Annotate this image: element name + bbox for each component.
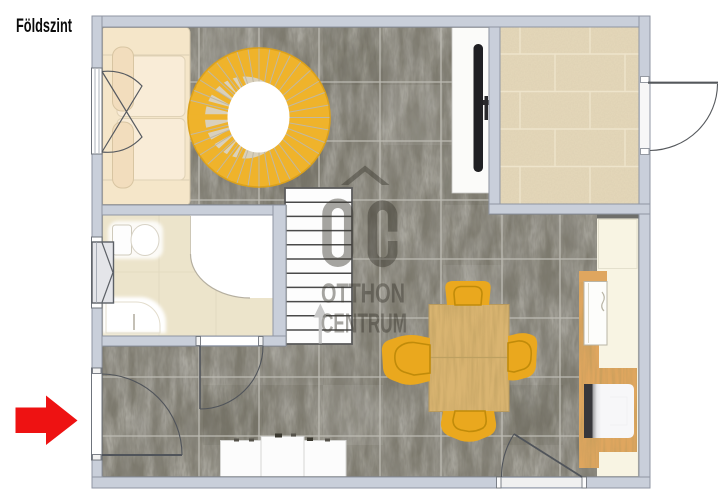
svg-text:CENTRUM: CENTRUM xyxy=(321,307,407,338)
svg-text:Földszint: Földszint xyxy=(16,15,72,37)
svg-text:OTTHON: OTTHON xyxy=(321,278,405,309)
